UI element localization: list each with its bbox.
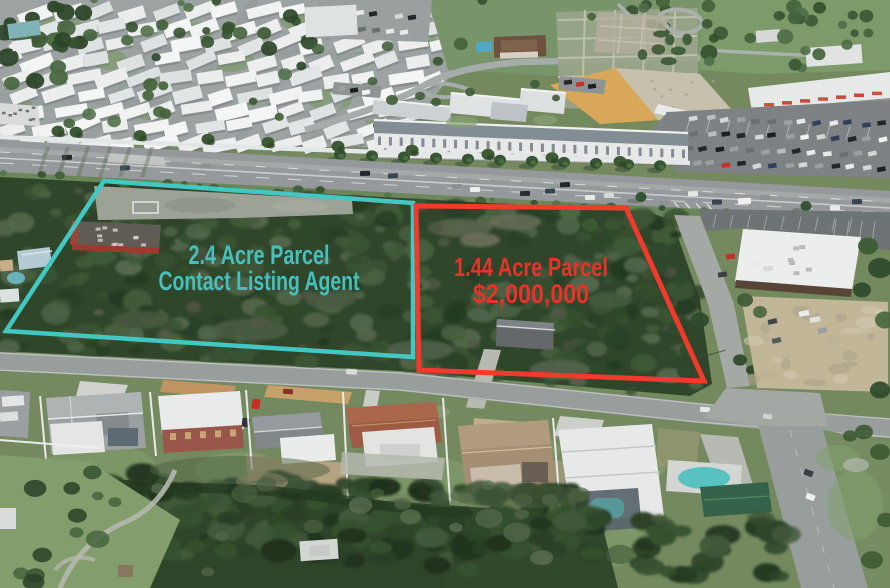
svg-text:1.44 Acre Parcel: 1.44 Acre Parcel <box>454 252 608 282</box>
svg-text:$2,000,000: $2,000,000 <box>473 279 589 309</box>
svg-text:Contact Listing Agent: Contact Listing Agent <box>159 266 360 296</box>
